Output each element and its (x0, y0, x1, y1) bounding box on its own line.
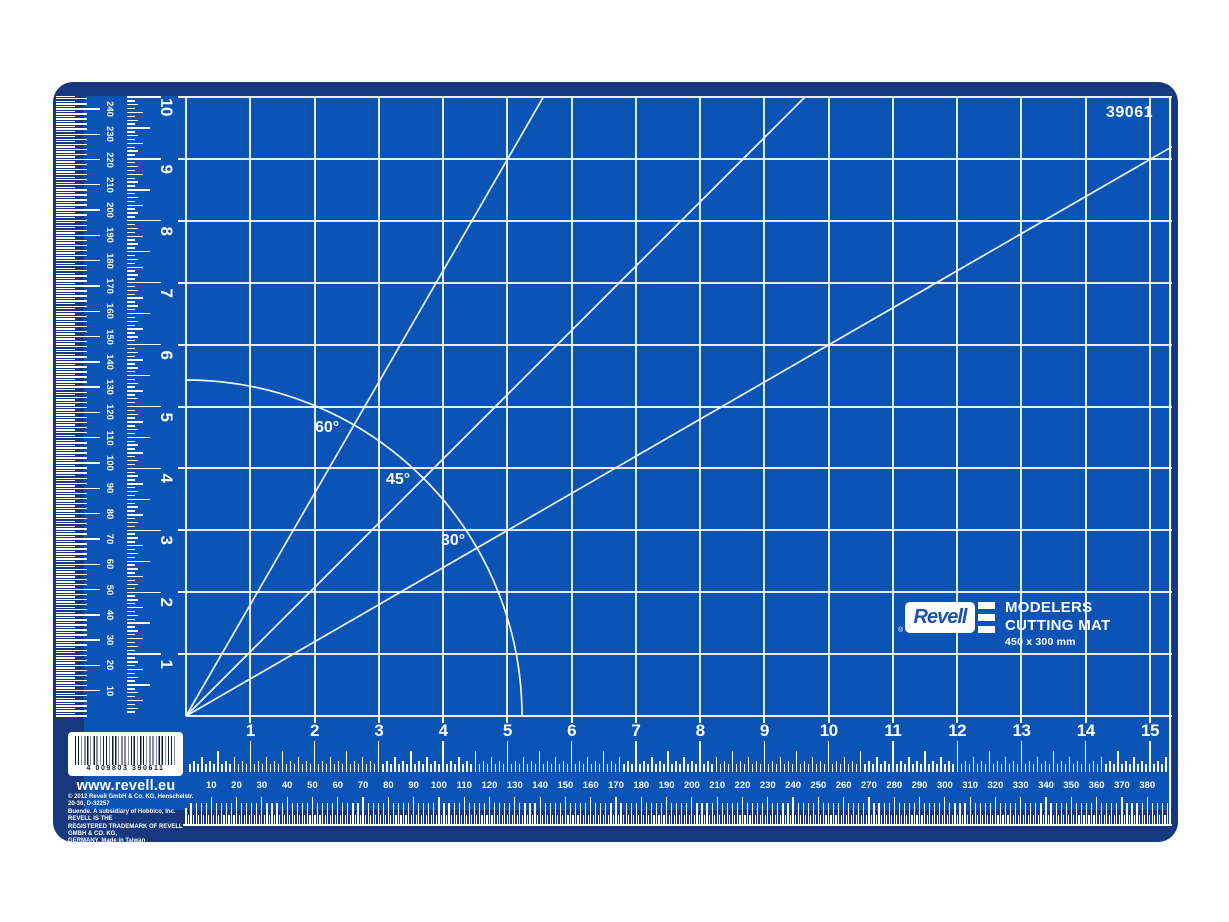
inch-tick-left (127, 630, 138, 631)
mm-tick-left (86, 386, 100, 387)
inch-tick-bottom (1137, 764, 1138, 772)
edge-comb-tick-bottom (805, 815, 806, 824)
edge-comb-tick-bottom (572, 815, 573, 824)
edge-comb-tick-bottom (848, 808, 849, 824)
inch-tick-bottom (382, 764, 383, 772)
inch-tick-bottom (563, 761, 564, 772)
inch-number-left: 9 (159, 154, 175, 184)
edge-comb-tick-bottom (762, 808, 763, 824)
edge-comb-tick-left (56, 566, 75, 567)
inch-tick-left (127, 638, 143, 639)
edge-comb-tick-left (56, 338, 75, 339)
inch-number-bottom: 2 (295, 722, 335, 740)
edge-comb-tick-bottom (944, 808, 945, 824)
edge-comb-tick-bottom (949, 808, 950, 824)
edge-comb-tick-bottom (529, 808, 530, 824)
inch-tick-left (127, 363, 135, 364)
inch-tick-left (127, 414, 138, 415)
edge-comb-tick-left (56, 263, 75, 264)
inch-tick-left (127, 599, 138, 600)
mm-number-left: 160 (104, 299, 114, 323)
edge-comb-tick-bottom (325, 815, 326, 824)
inch-tick-bottom (217, 751, 218, 772)
edge-comb-tick-bottom (1078, 815, 1079, 824)
inch-tick-left (127, 267, 143, 268)
edge-comb-tick-left (56, 462, 87, 463)
inch-tick-left (127, 680, 135, 681)
inch-number-left: 4 (159, 463, 175, 493)
edge-comb-tick-bottom (203, 815, 204, 824)
edge-comb-tick-bottom (1058, 815, 1059, 824)
inch-tick-bottom (551, 764, 552, 772)
edge-comb-tick-left (56, 553, 87, 554)
edge-comb-tick-left (56, 381, 87, 382)
inch-tick-left (127, 576, 143, 577)
inch-tick-bottom (201, 757, 202, 772)
edge-comb-tick-left (56, 270, 87, 271)
edge-comb-tick-bottom (1015, 808, 1016, 824)
inch-tick-bottom (804, 761, 805, 772)
edge-comb-tick-bottom (456, 815, 457, 824)
inch-number-left: 6 (159, 340, 175, 370)
inch-tick-bottom (346, 751, 347, 772)
inch-tick-bottom (776, 764, 777, 772)
edge-comb-tick-bottom (937, 815, 938, 824)
edge-comb-tick-bottom (699, 815, 700, 824)
edge-comb-tick-bottom (691, 808, 692, 824)
inch-tick-left (127, 174, 143, 175)
edge-comb-tick-bottom (413, 808, 414, 824)
edge-comb-tick-left (56, 209, 87, 210)
edge-comb-tick-left (56, 465, 75, 466)
inch-tick-bottom (266, 757, 267, 772)
edge-comb-tick-left (56, 695, 87, 696)
edge-comb-tick-bottom (828, 808, 829, 824)
angle-line-45 (186, 97, 805, 716)
inch-tick-bottom (623, 764, 624, 772)
inch-tick-left (127, 236, 143, 237)
edge-comb-tick-bottom (701, 808, 702, 824)
mm-tick-left (86, 564, 100, 565)
edge-comb-tick-bottom (623, 815, 624, 824)
inch-tick-left (127, 580, 135, 581)
inch-tick-left (127, 278, 135, 279)
edge-comb-tick-left (56, 108, 87, 109)
edge-comb-tick-bottom (216, 808, 217, 824)
edge-comb-tick-bottom (411, 815, 412, 824)
inch-tick-left (127, 143, 143, 144)
edge-comb-tick-bottom (709, 815, 710, 824)
edge-comb-tick-bottom (620, 808, 621, 824)
inch-tick-bottom (792, 764, 793, 772)
inch-tick-left (127, 553, 138, 554)
inch-tick-bottom (274, 761, 275, 772)
edge-comb-tick-bottom (433, 808, 434, 824)
edge-comb-tick-bottom (499, 808, 500, 824)
inch-tick-left (127, 518, 135, 519)
inch-tick-bottom (515, 761, 516, 772)
edge-comb-tick-bottom (233, 815, 234, 824)
inch-tick-bottom (250, 741, 251, 772)
edge-comb-tick-left (56, 531, 75, 532)
edge-comb-tick-bottom (562, 815, 563, 824)
inch-tick-bottom (394, 757, 395, 772)
edge-comb-tick-bottom (800, 815, 801, 824)
edge-comb-tick-bottom (615, 808, 616, 824)
edge-comb-tick-left (56, 556, 75, 557)
edge-comb-tick-bottom (755, 815, 756, 824)
inch-tick-bottom (205, 764, 206, 772)
edge-comb-tick-bottom (459, 808, 460, 824)
edge-comb-tick-bottom (497, 815, 498, 824)
edge-comb-tick-left (56, 252, 75, 253)
edge-comb-tick-bottom (494, 808, 495, 824)
edge-comb-tick-bottom (486, 815, 487, 824)
edge-comb-tick-left (56, 680, 87, 681)
inch-tick-bottom (1037, 757, 1038, 772)
edge-comb-tick-bottom (1142, 808, 1143, 824)
inch-tick-bottom (884, 761, 885, 772)
inch-tick-bottom (912, 764, 913, 772)
inch-tick-left (127, 398, 138, 399)
edge-comb-tick-left (56, 526, 75, 527)
edge-comb-tick-left (56, 189, 87, 190)
edge-comb-tick-bottom (416, 815, 417, 824)
ruler-frame-bottom-line (183, 824, 1172, 826)
inch-tick-bottom (1097, 764, 1098, 772)
edge-comb-tick-bottom (431, 815, 432, 824)
edge-comb-tick-left (56, 96, 75, 97)
mm-tick-left (86, 134, 100, 135)
edge-comb-tick-left (56, 171, 75, 172)
edge-comb-tick-bottom (228, 815, 229, 824)
edge-comb-tick-left (56, 179, 87, 180)
edge-comb-tick-left (56, 227, 75, 228)
edge-comb-tick-bottom (373, 808, 374, 824)
inch-tick-left (127, 286, 135, 287)
revell-logo-box: Revell (905, 602, 975, 633)
edge-comb-tick-bottom (947, 815, 948, 824)
inch-tick-left (127, 665, 135, 666)
inch-number-bottom: 8 (680, 722, 720, 740)
edge-comb-tick-left (56, 424, 75, 425)
inch-number-left: 5 (159, 402, 175, 432)
edge-comb-tick-bottom (405, 815, 406, 824)
inch-tick-bottom (659, 761, 660, 772)
edge-comb-tick-left (56, 576, 75, 577)
inch-tick-bottom (450, 761, 451, 772)
edge-comb-tick-left (56, 672, 75, 673)
edge-comb-tick-bottom (261, 808, 262, 824)
edge-comb-tick-bottom (330, 815, 331, 824)
edge-comb-tick-left (56, 149, 87, 150)
inch-tick-bottom (639, 764, 640, 772)
inch-tick-bottom (748, 757, 749, 772)
mm-tick-left (86, 361, 100, 362)
edge-comb-tick-left (56, 551, 75, 552)
edge-comb-tick-bottom (537, 815, 538, 824)
inch-tick-bottom (993, 764, 994, 772)
inch-tick-bottom (262, 764, 263, 772)
mm-number-left: 140 (104, 350, 114, 374)
edge-comb-tick-left (56, 101, 75, 102)
inch-tick-bottom (189, 764, 190, 772)
inch-tick-left (127, 669, 143, 670)
edge-comb-tick-bottom (469, 808, 470, 824)
inch-tick-bottom (1109, 761, 1110, 772)
inch-tick-bottom (225, 761, 226, 772)
inch-tick-bottom (1005, 757, 1006, 772)
edge-comb-tick-left (56, 275, 87, 276)
edge-comb-tick-bottom (785, 815, 786, 824)
edge-comb-tick-bottom (519, 808, 520, 824)
inch-tick-bottom (358, 764, 359, 772)
inch-tick-left (127, 433, 135, 434)
inch-tick-bottom (599, 764, 600, 772)
edge-comb-tick-bottom (375, 815, 376, 824)
edge-comb-tick-bottom (1106, 808, 1107, 824)
edge-comb-tick-left (56, 392, 87, 393)
edge-comb-tick-bottom (613, 815, 614, 824)
mm-tick-left (86, 412, 100, 413)
edge-comb-tick-left (56, 657, 75, 658)
edge-comb-tick-left (56, 662, 75, 663)
inch-tick-bottom (1077, 761, 1078, 772)
edge-comb-tick-bottom (714, 815, 715, 824)
edge-comb-tick-bottom (1030, 808, 1031, 824)
inch-tick-left (127, 541, 135, 542)
inch-tick-bottom (1073, 764, 1074, 772)
edge-comb-tick-bottom (327, 808, 328, 824)
edge-comb-tick-bottom (1076, 808, 1077, 824)
edge-comb-tick-left (56, 369, 75, 370)
edge-comb-tick-bottom (464, 808, 465, 824)
inch-tick-left (127, 158, 161, 159)
edge-comb-tick-left (56, 667, 75, 668)
edge-comb-tick-bottom (1167, 808, 1168, 824)
edge-comb-tick-left (56, 192, 75, 193)
edge-comb-tick-left (56, 409, 75, 410)
inch-tick-left (127, 212, 138, 213)
inch-tick-left (127, 410, 135, 411)
inch-tick-bottom (736, 764, 737, 772)
inch-tick-bottom (852, 761, 853, 772)
edge-comb-tick-left (56, 579, 87, 580)
inch-tick-bottom (1133, 757, 1134, 772)
edge-comb-tick-bottom (669, 815, 670, 824)
edge-comb-tick-left (56, 303, 75, 304)
inch-tick-left (127, 185, 135, 186)
edge-comb-tick-bottom (894, 808, 895, 824)
mm-tick-left (86, 209, 100, 210)
mm-number-left: 100 (104, 451, 114, 475)
edge-comb-tick-left (56, 182, 75, 183)
edge-comb-tick-left (56, 569, 87, 570)
edge-comb-tick-bottom (517, 815, 518, 824)
inch-tick-bottom (354, 761, 355, 772)
edge-comb-tick-bottom (775, 815, 776, 824)
edge-comb-tick-left (56, 197, 75, 198)
grid-stub-left (178, 467, 186, 469)
inch-tick-bottom (952, 764, 953, 772)
inch-tick-left (127, 247, 135, 248)
cutting-mat: 1234567891011121314151234567891010203040… (53, 82, 1178, 842)
edge-comb-tick-bottom (550, 808, 551, 824)
edge-comb-tick-bottom (749, 815, 750, 824)
revell-wordmark: Revell (914, 606, 967, 629)
edge-comb-tick-left (56, 177, 75, 178)
inch-tick-bottom (302, 764, 303, 772)
inch-tick-bottom (691, 761, 692, 772)
edge-comb-tick-left (56, 546, 75, 547)
edge-comb-tick-bottom (443, 808, 444, 824)
edge-comb-tick-bottom (889, 808, 890, 824)
edge-comb-tick-bottom (1053, 815, 1054, 824)
edge-comb-tick-left (56, 670, 87, 671)
inch-tick-bottom (507, 741, 508, 772)
inch-tick-left (127, 653, 161, 654)
inch-number-left: 10 (159, 92, 175, 122)
edge-comb-tick-left (56, 644, 87, 645)
edge-comb-tick-bottom (1136, 808, 1137, 824)
edge-comb-tick-bottom (1020, 808, 1021, 824)
edge-comb-tick-left (56, 250, 87, 251)
edge-comb-tick-left (56, 624, 87, 625)
mm-number-bottom: 380 (1132, 781, 1162, 791)
edge-comb-tick-bottom (977, 815, 978, 824)
inch-tick-bottom (888, 764, 889, 772)
edge-comb-tick-bottom (1028, 815, 1029, 824)
edge-comb-tick-left (56, 356, 87, 357)
inch-tick-bottom (470, 764, 471, 772)
edge-comb-tick-left (56, 217, 75, 218)
inch-tick-bottom (434, 761, 435, 772)
inch-tick-left (127, 197, 138, 198)
edge-comb-tick-bottom (818, 808, 819, 824)
edge-comb-tick-bottom (350, 815, 351, 824)
inch-tick-bottom (587, 757, 588, 772)
edge-comb-tick-bottom (1093, 815, 1094, 824)
inch-tick-left (127, 572, 135, 573)
inch-tick-bottom (595, 761, 596, 772)
edge-comb-tick-bottom (992, 815, 993, 824)
edge-comb-tick-left (56, 614, 87, 615)
edge-comb-tick-left (56, 650, 87, 651)
edge-comb-tick-bottom (772, 808, 773, 824)
inch-tick-left (127, 479, 135, 480)
edge-comb-tick-bottom (1025, 808, 1026, 824)
edge-comb-tick-bottom (393, 808, 394, 824)
inch-tick-left (127, 181, 138, 182)
edge-comb-tick-left (56, 607, 75, 608)
mm-number-left: 20 (104, 653, 114, 677)
inch-tick-bottom (1021, 741, 1022, 772)
inch-tick-left (127, 522, 138, 523)
edge-comb-tick-left (56, 452, 87, 453)
inch-tick-left (127, 263, 135, 264)
edge-comb-tick-bottom (1083, 815, 1084, 824)
edge-comb-tick-left (56, 341, 87, 342)
edge-comb-tick-left (56, 528, 87, 529)
inch-tick-bottom (414, 764, 415, 772)
inch-tick-left (127, 243, 138, 244)
inch-tick-bottom (322, 761, 323, 772)
inch-tick-bottom (1105, 764, 1106, 772)
inch-tick-bottom (651, 757, 652, 772)
mm-tick-left (86, 639, 100, 640)
edge-comb-tick-bottom (932, 815, 933, 824)
inch-tick-bottom (603, 751, 604, 772)
edge-comb-tick-left (56, 564, 87, 565)
inch-tick-left (127, 673, 135, 674)
edge-comb-tick-bottom (595, 808, 596, 824)
edge-comb-tick-bottom (555, 808, 556, 824)
edge-comb-tick-bottom (1139, 815, 1140, 824)
edge-comb-tick-bottom (787, 808, 788, 824)
inch-tick-bottom (454, 764, 455, 772)
mm-number-left: 30 (104, 628, 114, 652)
edge-comb-tick-left (56, 412, 87, 413)
inch-tick-left (127, 619, 135, 620)
edge-comb-tick-left (56, 336, 87, 337)
edge-comb-tick-bottom (309, 815, 310, 824)
inch-tick-bottom (286, 764, 287, 772)
edge-comb-tick-bottom (886, 815, 887, 824)
inch-tick-bottom (981, 761, 982, 772)
inch-tick-left (127, 557, 135, 558)
inch-tick-bottom (944, 764, 945, 772)
mm-tick-left (86, 235, 100, 236)
edge-comb-tick-bottom (319, 815, 320, 824)
edge-comb-tick-left (56, 136, 75, 137)
edge-comb-tick-bottom (706, 808, 707, 824)
edge-comb-tick-left (56, 212, 75, 213)
inch-tick-left (127, 255, 135, 256)
edge-comb-tick-left (56, 637, 75, 638)
inch-tick-bottom (675, 761, 676, 772)
edge-comb-tick-bottom (426, 815, 427, 824)
edge-comb-tick-left (56, 349, 75, 350)
inch-tick-left (127, 495, 135, 496)
inch-number-bottom: 14 (1066, 722, 1106, 740)
edge-comb-tick-bottom (727, 808, 728, 824)
inch-tick-left (127, 170, 135, 171)
edge-comb-tick-bottom (1149, 815, 1150, 824)
edge-comb-tick-left (56, 273, 75, 274)
edge-comb-tick-left (56, 700, 87, 701)
edge-comb-tick-bottom (641, 808, 642, 824)
edge-comb-tick-bottom (724, 815, 725, 824)
edge-comb-tick-bottom (878, 808, 879, 824)
inch-tick-bottom (940, 757, 941, 772)
edge-comb-tick-left (56, 450, 75, 451)
edge-comb-tick-bottom (335, 815, 336, 824)
inch-tick-bottom (418, 761, 419, 772)
mm-tick-left (86, 538, 100, 539)
edge-comb-tick-left (56, 116, 75, 117)
edge-comb-tick-bottom (866, 815, 867, 824)
edge-comb-tick-left (56, 543, 87, 544)
inch-number-bottom: 5 (487, 722, 527, 740)
inch-tick-bottom (752, 764, 753, 772)
inch-tick-bottom (611, 761, 612, 772)
edge-comb-tick-left (56, 518, 87, 519)
inch-tick-bottom (635, 741, 636, 772)
edge-comb-tick-bottom (1086, 808, 1087, 824)
inch-tick-left (127, 166, 138, 167)
inch-tick-left (127, 533, 135, 534)
inch-tick-bottom (1161, 764, 1162, 772)
